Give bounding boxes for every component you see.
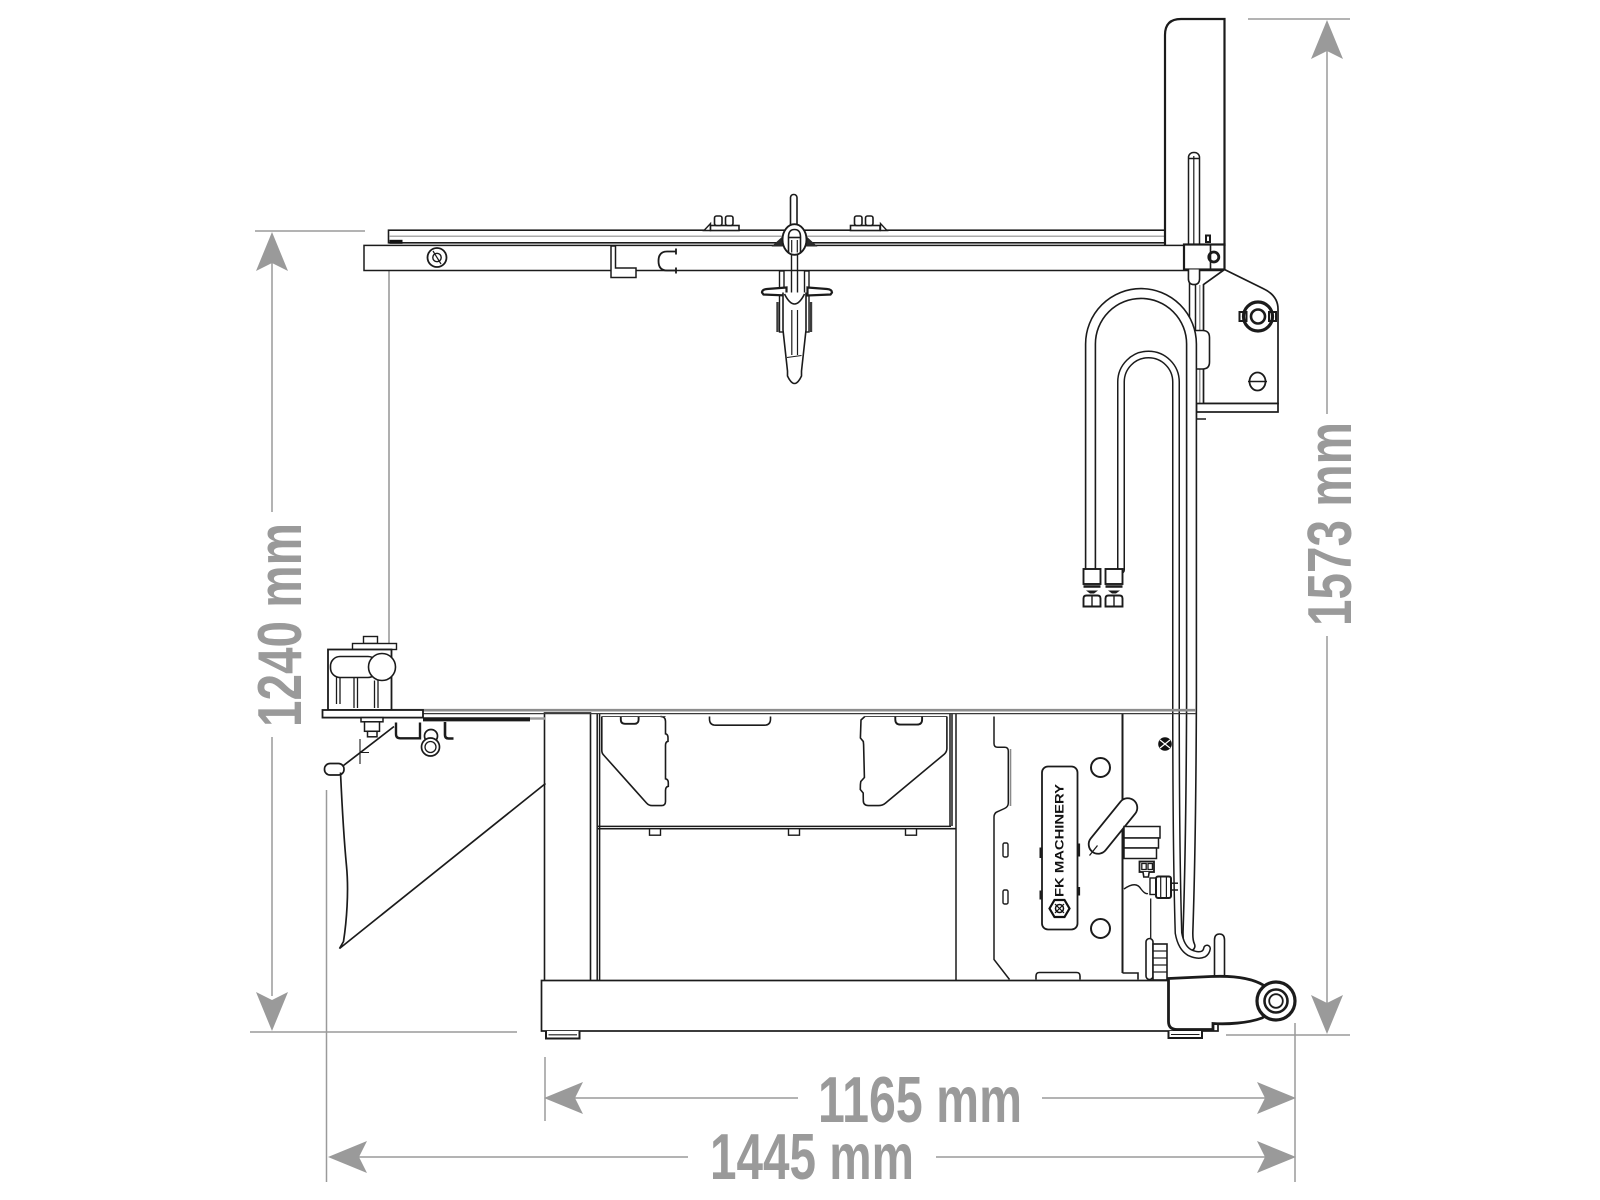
svg-text:1573 mm: 1573 mm (1296, 422, 1365, 626)
svg-text:1240 mm: 1240 mm (246, 523, 315, 727)
svg-text:1445 mm: 1445 mm (710, 1120, 914, 1193)
svg-text:FK MACHINERY: FK MACHINERY (1053, 784, 1067, 897)
